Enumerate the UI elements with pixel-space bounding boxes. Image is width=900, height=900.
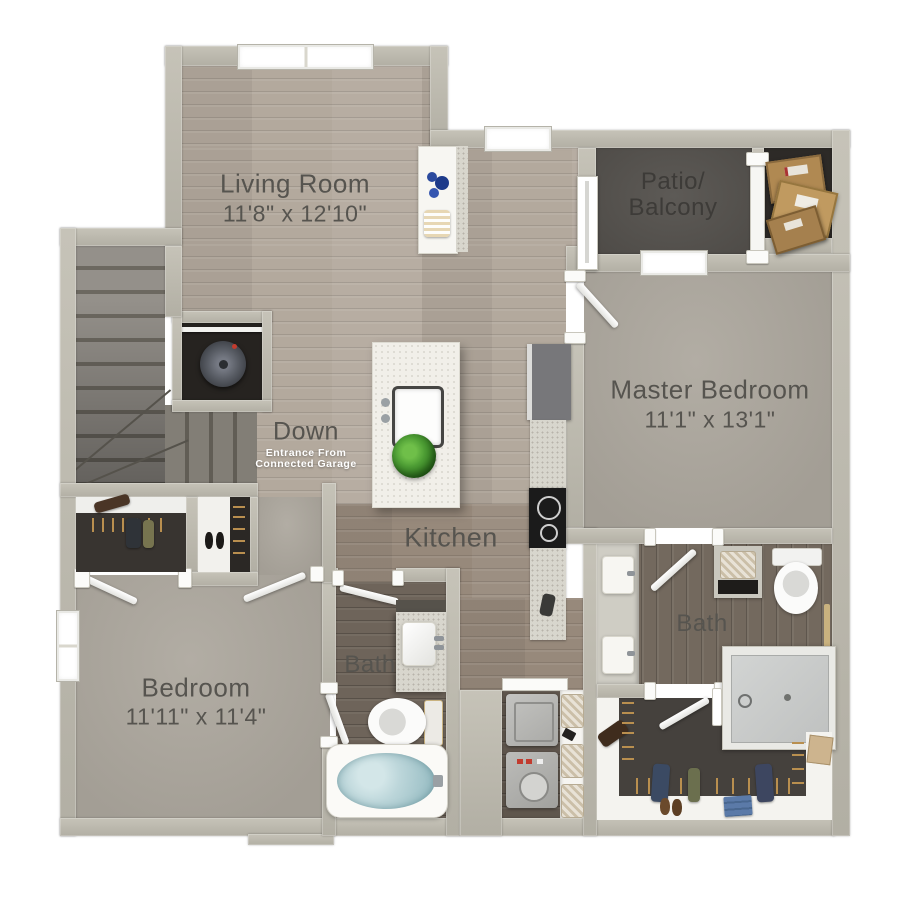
box-label <box>784 164 808 176</box>
decor-bowls <box>424 210 450 237</box>
folded-jeans <box>723 795 752 817</box>
wall-closet-divider <box>186 497 198 572</box>
living-room-dims: 11'8" x 12'10" <box>223 201 367 228</box>
sideboard-edge <box>456 146 468 252</box>
door-frame-cap <box>564 332 586 344</box>
box-label <box>784 218 804 231</box>
hanging-clothes <box>755 763 775 802</box>
shoes <box>205 532 213 549</box>
water-heater-valve <box>232 344 237 349</box>
hanger <box>233 506 245 508</box>
patio-label-line1: Patio/ <box>641 168 705 196</box>
bath-sink <box>402 622 436 666</box>
wall-laundry-left <box>460 690 502 836</box>
bathtub <box>326 744 448 818</box>
closet-dark-section <box>230 497 250 572</box>
shoes <box>660 798 670 815</box>
wall-vestibule-right <box>322 483 336 583</box>
utility-closet-rod <box>182 327 262 332</box>
cabinet-shelf-gap <box>718 580 758 594</box>
bedroom-vestibule-floor <box>258 497 322 575</box>
washer-lid <box>514 702 554 742</box>
living-room-label: Living Room <box>220 169 370 200</box>
wall-stairs-right <box>165 246 182 317</box>
hanging-clothes <box>126 518 141 548</box>
hanging-clothes <box>688 768 700 802</box>
wall-masterbath-left <box>583 528 597 836</box>
wall-bath-left <box>322 582 336 686</box>
kitchen-counter <box>530 420 566 490</box>
tub-faucet <box>433 775 443 787</box>
entry-window <box>484 126 552 152</box>
toilet-tank <box>424 700 443 746</box>
bath-label: Bath <box>344 651 395 679</box>
utility-closet-wall <box>172 400 272 412</box>
door-frame-cap <box>644 528 656 546</box>
floor-plan: Living Room 11'8" x 12'10" Patio/ Balcon… <box>0 0 900 900</box>
master-bath-label: Bath <box>676 610 727 638</box>
bedroom-dims: 11'11" x 11'4" <box>126 704 267 731</box>
sideboard <box>418 146 458 254</box>
shower-door <box>712 688 722 726</box>
patio-label-line2: Balcony <box>629 194 718 222</box>
water-heater-cap <box>219 360 228 369</box>
bathtub-water <box>337 753 435 809</box>
wall-closet-right <box>250 497 258 572</box>
door-frame-cap <box>746 250 769 264</box>
sliding-door-glass <box>585 181 589 263</box>
utility-closet-wall <box>172 311 272 323</box>
cabinet-basket <box>720 551 756 579</box>
utility-closet-wall <box>262 311 272 412</box>
island-faucet <box>381 398 390 407</box>
potted-plant <box>392 434 436 478</box>
faucet <box>627 651 635 656</box>
master-vanity-sink <box>602 556 634 594</box>
door-frame-cap <box>320 682 338 694</box>
faucet <box>627 571 635 576</box>
shower-drain <box>784 694 791 701</box>
shelf-basket <box>561 784 584 818</box>
cooktop <box>529 488 566 548</box>
door-frame-cap <box>310 566 324 582</box>
storage-bin <box>806 735 833 766</box>
towel-bar <box>824 604 830 648</box>
refrigerator <box>527 344 571 420</box>
wall-masterbath-top <box>566 528 650 544</box>
dryer <box>506 752 558 808</box>
wall-stairs-top <box>60 228 182 246</box>
burner <box>540 524 558 542</box>
wall-outer-left <box>60 228 76 836</box>
storage-door <box>750 162 765 254</box>
master-bedroom-window <box>640 250 708 276</box>
patio-sliding-door <box>577 176 598 270</box>
window-mullion <box>304 47 307 67</box>
vanity-backsplash <box>396 600 446 612</box>
door-frame-cap <box>392 570 404 586</box>
utility-closet-wall <box>172 311 182 412</box>
bedroom-window <box>56 610 80 682</box>
laundry-bifold-doors <box>502 678 568 691</box>
bath-cabinet <box>714 546 762 598</box>
dryer-buttons <box>517 759 523 764</box>
master-bedroom-dims: 11'1" x 13'1" <box>645 407 776 434</box>
wall-living-left <box>165 46 182 246</box>
kitchen-label: Kitchen <box>404 523 498 554</box>
master-vanity-sink <box>602 636 634 674</box>
closet-shelf <box>76 497 186 513</box>
linen-closet <box>198 497 230 572</box>
hanger <box>92 518 94 532</box>
shelf-basket <box>561 744 584 778</box>
wall-closet-row-top <box>60 483 258 497</box>
living-room-floor <box>182 66 430 150</box>
door-frame-cap <box>712 528 724 546</box>
bedroom-label: Bedroom <box>142 673 251 704</box>
hanger <box>622 702 634 704</box>
shower-fixture <box>738 694 752 708</box>
door-frame-cap <box>564 270 586 282</box>
hanger <box>792 742 804 744</box>
toilet-bowl <box>368 698 426 746</box>
dryer-door <box>519 772 549 802</box>
master-bedroom-label: Master Bedroom <box>610 375 809 406</box>
door-frame-cap <box>644 682 656 700</box>
door-frame-cap <box>332 570 344 586</box>
hanging-clothes <box>143 520 154 548</box>
shower-pan <box>731 655 829 743</box>
wall-patio-bottom <box>578 254 850 272</box>
living-room-window <box>237 44 374 70</box>
hanger <box>636 778 638 794</box>
burner <box>537 496 561 520</box>
down-label: Down <box>273 418 339 447</box>
master-toilet-bowl <box>774 562 818 614</box>
hanging-clothes <box>651 763 671 802</box>
wall-masterbath-top <box>716 528 832 544</box>
wall-bath-right <box>446 568 460 836</box>
window-mullion <box>59 645 77 648</box>
decor-vases <box>427 172 437 182</box>
garage-entrance-note-line2: Connected Garage <box>255 458 356 470</box>
closet-shelf <box>597 796 832 820</box>
washer <box>506 694 558 746</box>
wall-closet-bottom <box>186 572 258 586</box>
shelf-basket <box>561 694 584 728</box>
staircase-landing <box>165 405 257 487</box>
bath-faucet <box>434 636 444 641</box>
